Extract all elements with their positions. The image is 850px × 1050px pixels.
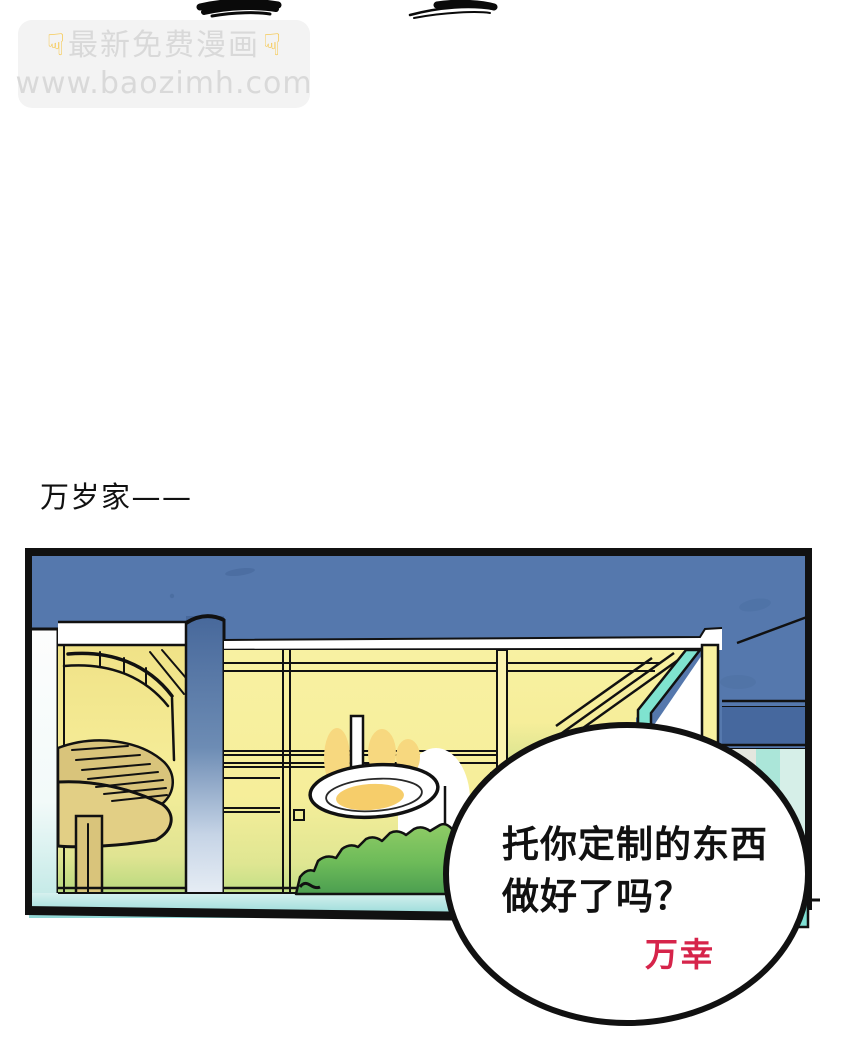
pillar (186, 616, 224, 908)
comic-page: ☟ 最新免费漫画 ☟ www.baozimh.com 万岁家—— 托你定制的东西… (0, 0, 850, 1050)
watermark-url: www.baozimh.com (15, 69, 312, 99)
watermark: ☟ 最新免费漫画 ☟ www.baozimh.com (18, 20, 310, 108)
speech-bubble-line2: 做好了吗？ (502, 866, 692, 920)
right-window-blue (722, 707, 807, 745)
speech-bubble-speaker: 万幸 (645, 928, 715, 976)
left-exterior-wall (32, 628, 58, 908)
ink-scribble-left (200, 2, 278, 16)
ink-scribble-right (410, 3, 494, 18)
hand-down-icon: ☟ (47, 31, 65, 61)
watermark-title: 最新免费漫画 (68, 31, 260, 61)
comic-panel-illustration (0, 0, 850, 1050)
watermark-title-row: ☟ 最新免费漫画 ☟ (47, 31, 282, 61)
speech-bubble-line1: 托你定制的东西 (502, 814, 768, 868)
hand-down-icon: ☟ (263, 31, 281, 61)
narration-caption: 万岁家—— (40, 474, 193, 516)
